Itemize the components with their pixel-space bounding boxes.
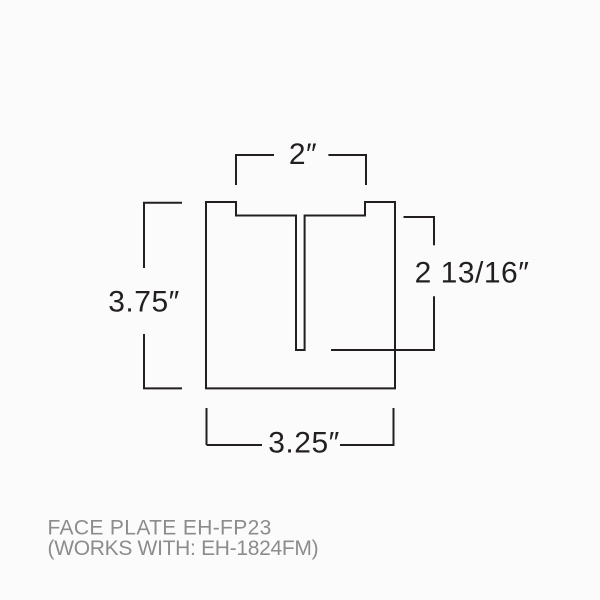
svg-text:(WORKS WITH: EH-1824FM): (WORKS WITH: EH-1824FM) bbox=[48, 537, 319, 560]
svg-text:3.25″: 3.25″ bbox=[268, 427, 340, 460]
svg-text:2″: 2″ bbox=[289, 138, 317, 171]
svg-text:2 13/16″: 2 13/16″ bbox=[415, 257, 530, 290]
svg-text:3.75″: 3.75″ bbox=[108, 286, 180, 319]
